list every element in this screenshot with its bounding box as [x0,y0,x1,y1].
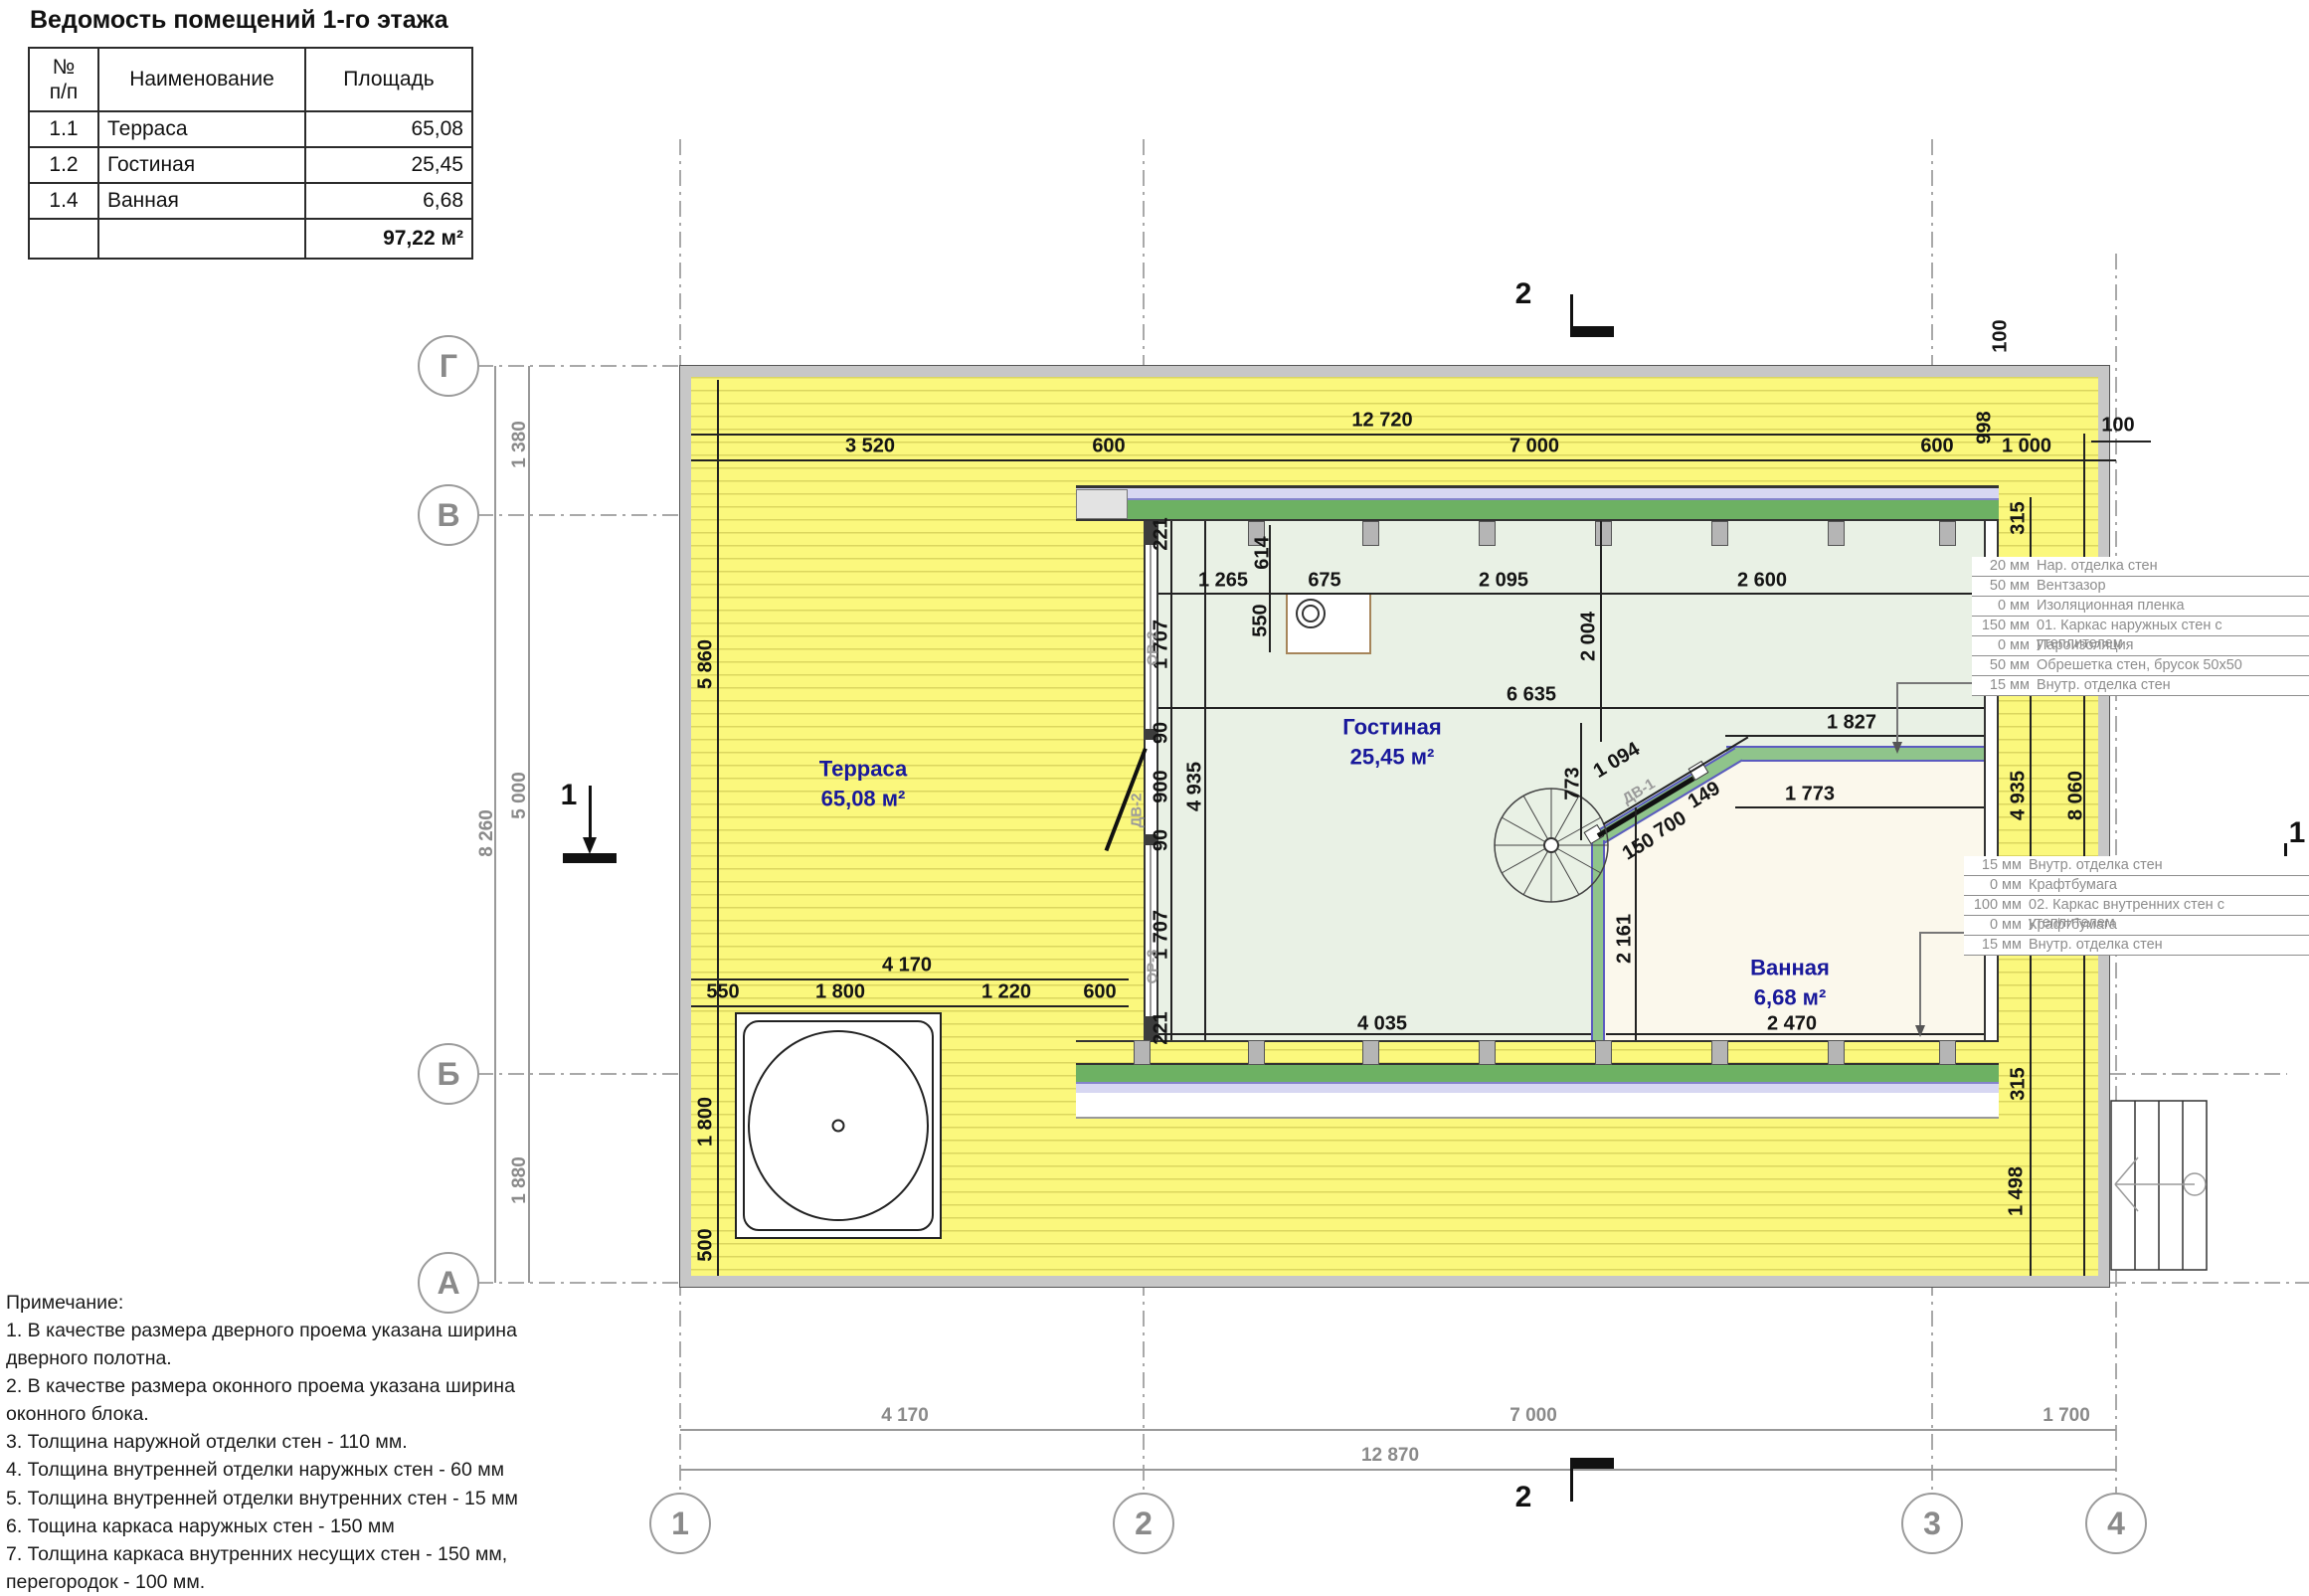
hot-tub [735,1012,942,1239]
callout-leader-arrow [1915,1025,1925,1037]
dim-line [528,366,530,1283]
wall-bottom-inner-line [1076,1040,1999,1042]
wall-top-sill [1076,500,1999,519]
dim-label: 1 800 [815,981,865,1004]
section-marker-label: 1 [2289,816,2306,850]
dim-line [1735,806,1984,808]
dim-line [680,1429,2116,1431]
dim-label: 4 170 [882,955,932,977]
stud [1939,1040,1956,1065]
dim-label: 7 000 [1510,1405,1557,1427]
dim-label: 315 [2008,1067,2031,1100]
dim-label: 221 [1151,1011,1173,1044]
dim-label: 90 [1151,722,1173,744]
section-marker-label: 2 [1515,1481,1532,1514]
callout-leader [1896,682,1898,744]
note-line: 5. Толщина внутренней отделки внутренних… [6,1485,591,1512]
dim-label: 5 860 [695,639,718,689]
dim-label: 8 060 [2065,771,2088,820]
stud [1595,521,1612,546]
dim-label: 4 035 [1357,1013,1407,1036]
dim-label: 600 [1092,436,1125,458]
stud [1595,1040,1612,1065]
stud [1479,1040,1496,1065]
stud [1711,1040,1728,1065]
column-header-no: № п/п [29,48,98,111]
dim-line [691,459,2116,461]
note-line: 6. Тощина каркаса наружных стен - 150 мм [6,1512,591,1540]
dim-label: 315 [2008,501,2031,534]
stud [1362,521,1379,546]
stud [1828,1040,1845,1065]
page-title: Ведомость помещений 1-го этажа [30,6,473,35]
callout-leader [1919,932,1966,934]
dim-label: 600 [1920,436,1953,458]
dim-label: 12 870 [1361,1445,1419,1467]
section-marker-flag [563,853,617,863]
dim-label: 7 000 [1510,436,1559,458]
section-marker-flag [1570,1458,1614,1469]
dim-label: 550 [1250,604,1273,636]
dim-label: 4 935 [2008,771,2031,820]
drawing-sheet: 12 720 3 520 600 7 000 600 998 1 000 100… [0,0,2309,1565]
dim-label: 2 161 [1614,914,1637,964]
table-row: 1.2 Гостиная 25,45 [29,147,472,183]
column-header-area: Площадь [305,48,472,111]
callout-external-walls: 20 ммНар. отделка стен 50 ммВентзазор 0 … [1972,557,2309,696]
dim-label: 1 380 [509,421,531,468]
dim-label: 1 498 [2006,1166,2029,1216]
grid-line-b [477,1073,693,1075]
dim-label: 773 [1562,767,1585,799]
section-marker-label: 2 [1515,277,1532,311]
note-line: 4. Толщина внутренней отделки наружных с… [6,1456,591,1484]
stud [1479,521,1496,546]
dim-label: 1 800 [695,1097,718,1147]
notes-block: Примечание: 1. В качестве размера дверно… [6,1289,591,1596]
table-row: 1.1 Терраса 65,08 [29,111,472,147]
dim-label: 2 600 [1737,570,1787,593]
stud [1939,521,1956,546]
dim-label: 1 220 [981,981,1031,1004]
stud [1248,1040,1265,1065]
callout-internal-walls: 15 ммВнутр. отделка стен 0 ммКрафтбумага… [1964,856,2309,956]
dim-label: 221 [1151,517,1173,550]
stud [1828,521,1845,546]
dim-line [680,1469,2116,1471]
wall-bottom-deck [1076,1093,1999,1117]
spiral-stair [1490,784,1613,907]
room-label-terrace: Терраса65,08 м² [819,754,907,812]
dim-label: 2 004 [1578,612,1601,661]
dim-label: 100 [2101,415,2134,438]
dim-label: 1 000 [2002,436,2051,458]
column-header-name: Наименование [98,48,305,111]
dim-label: 1 827 [1827,712,1876,735]
axis-bubble-g: Г [418,335,479,397]
stud [1134,1040,1151,1065]
dim-line [1725,735,1984,737]
table-total-row: 97,22 м² [29,219,472,259]
axis-bubble-4: 4 [2085,1493,2147,1554]
dim-label: 1 700 [2043,1405,2090,1427]
stove-burner-inner [1302,605,1320,622]
dim-label: 1 773 [1785,784,1835,806]
dim-label: 3 520 [845,436,895,458]
section-marker-label: 1 [561,779,578,812]
callout-leader [1896,682,1974,684]
dim-label: 8 260 [476,809,498,857]
opening-label-or3: ОР-3 [1145,949,1161,983]
dim-label: 2 095 [1479,570,1528,593]
stud [1362,1040,1379,1065]
stove [1286,593,1371,654]
total-area: 97,22 м² [305,219,472,259]
entry-stairs [2110,1100,2208,1271]
hot-tub-drain [832,1120,845,1133]
opening-label-or2: ОР-2 [1145,630,1161,665]
dim-label: 998 [1974,411,1997,443]
callout-leader-arrow [1892,742,1902,754]
dim-label: 6 635 [1507,684,1556,707]
note-line: 3. Толщина наружной отделки стен - 110 м… [6,1428,591,1456]
dim-line [1158,593,1984,595]
dim-label: 614 [1252,536,1275,569]
room-label-living: Гостиная25,45 м² [1342,712,1441,771]
bathroom-wall-top [1726,746,1984,762]
axis-bubble-v: В [418,484,479,546]
dim-label: 4 935 [1184,762,1207,811]
callout-leader [1919,932,1921,1027]
axis-bubble-3: 3 [1901,1493,1963,1554]
opening-label-dv2: ДВ-2 [1129,794,1146,828]
stove-burner-outer [1296,599,1326,628]
section-marker-arrow [583,837,597,854]
dim-label: 600 [1083,981,1116,1004]
porch-post [1076,489,1128,519]
grid-line-g [477,365,696,367]
section-marker-line [589,786,592,837]
dim-label: 5 000 [509,772,531,819]
dim-label: 550 [706,981,739,1004]
dim-label: 1 265 [1198,570,1248,593]
dim-line [2091,441,2151,443]
section-marker-flag [1570,326,1614,337]
dim-label: 2 470 [1767,1013,1817,1036]
axis-bubble-1: 1 [649,1493,711,1554]
wall-bottom-insulation [1076,1082,1999,1093]
dim-line [691,978,1129,980]
dim-label: 100 [1990,319,2013,352]
wall-bottom-edge [1076,1117,1999,1119]
dim-label: 12 720 [1351,410,1412,433]
dim-label: 500 [695,1228,718,1261]
dim-label: 675 [1308,570,1340,593]
dim-label: 900 [1151,770,1173,802]
dim-label: 90 [1151,829,1173,851]
grid-line-a [477,1282,693,1284]
room-label-bath: Ванная6,68 м² [1750,953,1830,1011]
grid-line-b-right [2110,1073,2287,1075]
stud [1711,521,1728,546]
room-schedule-table: № п/п Наименование Площадь 1.1 Терраса 6… [28,47,473,260]
wall-bottom-sill [1076,1065,1999,1082]
notes-heading: Примечание: [6,1289,591,1317]
axis-bubble-2: 2 [1113,1493,1174,1554]
note-line: 7. Толщина каркаса внутренних несущих ст… [6,1540,591,1596]
dim-line [1158,707,1984,709]
room-schedule: Ведомость помещений 1-го этажа № п/п Наи… [28,6,473,260]
wall-top-insulation [1076,488,1999,500]
note-line: 2. В качестве размера оконного проема ук… [6,1372,591,1428]
dim-label: 4 170 [881,1405,929,1427]
table-row: 1.4 Ванная 6,68 [29,183,472,219]
note-line: 1. В качестве размера дверного проема ук… [6,1317,591,1372]
dim-line [691,1005,1129,1007]
axis-bubble-b: Б [418,1043,479,1105]
grid-line-a-right [2110,1282,2309,1284]
dim-label: 1 880 [509,1156,531,1204]
